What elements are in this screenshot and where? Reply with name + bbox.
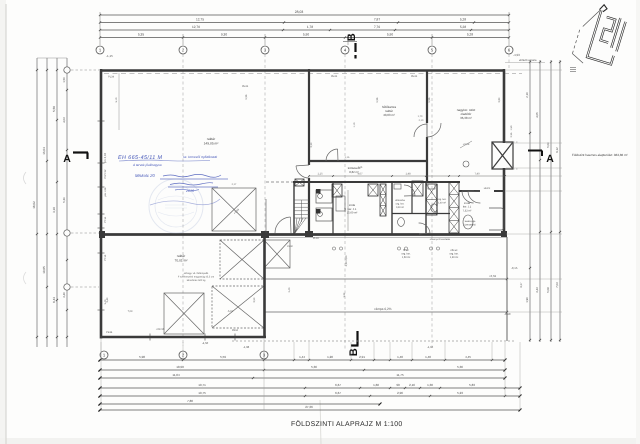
svg-text:2,17: 2,17 <box>344 207 347 212</box>
svg-text:2,50 2,60: 2,50 2,60 <box>345 255 348 266</box>
svg-text:4,05: 4,05 <box>535 112 539 118</box>
svg-text:5,28: 5,28 <box>467 33 473 37</box>
svg-text:3,10: 3,10 <box>52 207 56 213</box>
svg-text:1,70: 1,70 <box>418 115 423 118</box>
svg-text:pm 3,03: pm 3,03 <box>103 153 107 164</box>
svg-text:teherbírás 500 kg: teherbírás 500 kg <box>187 279 206 282</box>
svg-text:7,32 m²: 7,32 m² <box>463 209 472 212</box>
svg-text:PT 30: PT 30 <box>104 254 107 261</box>
svg-text:3,50: 3,50 <box>253 297 256 302</box>
svg-text:5,59: 5,59 <box>220 355 226 359</box>
svg-text:HUPF: HUPF <box>484 187 491 190</box>
svg-text:4,45: 4,45 <box>465 355 471 359</box>
svg-text:2,35: 2,35 <box>510 132 513 137</box>
svg-text:A: A <box>63 153 71 165</box>
svg-text:-4,93: -4,93 <box>513 53 520 57</box>
svg-text:3,80: 3,80 <box>498 97 501 102</box>
svg-text:B: B <box>348 348 360 356</box>
svg-text:40,03 m²: 40,03 m² <box>383 113 395 117</box>
svg-text:11,75: 11,75 <box>396 373 404 377</box>
svg-text:8,43: 8,43 <box>52 297 56 303</box>
svg-text:3,43: 3,43 <box>535 287 539 293</box>
svg-text:4,03: 4,03 <box>62 117 66 123</box>
svg-text:1,15: 1,15 <box>317 172 323 175</box>
svg-text:6,67: 6,67 <box>335 383 341 387</box>
svg-text:12,70: 12,70 <box>192 25 200 29</box>
svg-text:A: A <box>546 153 554 165</box>
svg-text:ker. J.1: ker. J.1 <box>463 206 472 209</box>
svg-text:70,01 m²: 70,01 m² <box>174 258 188 262</box>
svg-text:-0,15: -0,15 <box>511 266 518 270</box>
svg-text:PE34: PE34 <box>106 331 113 334</box>
svg-text:5,10: 5,10 <box>115 97 118 102</box>
svg-text:-1,96: -1,96 <box>427 345 434 349</box>
svg-text:pm 1,96: pm 1,96 <box>104 187 107 196</box>
svg-text:3,40: 3,40 <box>62 292 66 298</box>
svg-text:12,75: 12,75 <box>196 18 204 22</box>
svg-text:org. ker.: org. ker. <box>401 253 410 256</box>
svg-text:9,30: 9,30 <box>221 33 227 37</box>
svg-text:1,30: 1,30 <box>427 383 433 387</box>
svg-text:7,80: 7,80 <box>187 399 193 403</box>
svg-text:3,10: 3,10 <box>310 142 313 147</box>
svg-text:5,96: 5,96 <box>428 97 431 102</box>
svg-text:3,02: 3,02 <box>343 292 346 297</box>
svg-text:sz. tervezői nyilatkozat: sz. tervezői nyilatkozat <box>183 155 218 159</box>
svg-text:+0,59: +0,59 <box>489 274 497 278</box>
svg-text:18,02: 18,02 <box>32 201 36 209</box>
svg-text:5,58: 5,58 <box>52 106 56 112</box>
svg-text:PL40: PL40 <box>287 245 293 248</box>
svg-text:7,03: 7,03 <box>555 282 559 288</box>
svg-text:Miskolc 20: Miskolc 20 <box>135 173 155 178</box>
svg-text:-5,02: -5,02 <box>227 310 233 313</box>
svg-text:1,40 m²: 1,40 m² <box>438 202 446 205</box>
svg-text:5,83: 5,83 <box>469 383 475 387</box>
svg-text:org. ker.: org. ker. <box>449 253 458 256</box>
svg-text:2,16: 2,16 <box>409 383 415 387</box>
svg-text:28,03: 28,03 <box>295 10 304 14</box>
svg-text:8,27: 8,27 <box>520 282 523 288</box>
svg-text:teakonyha: teakonyha <box>465 220 476 223</box>
svg-text:6,67: 6,67 <box>335 391 341 395</box>
svg-text:PE34: PE34 <box>232 329 239 332</box>
svg-text:5,96: 5,96 <box>376 97 379 102</box>
svg-text:11,04: 11,04 <box>172 373 180 377</box>
svg-text:19,71: 19,71 <box>198 383 206 387</box>
svg-text:1,50 m²: 1,50 m² <box>402 256 411 259</box>
svg-text:női wc: női wc <box>450 249 458 252</box>
svg-text:FÖLDSZINTI ALAPRAJZ M 1:100: FÖLDSZINTI ALAPRAJZ M 1:100 <box>291 420 403 428</box>
svg-text:-1,98: -1,98 <box>243 345 250 349</box>
svg-text:1,40: 1,40 <box>397 355 403 359</box>
svg-text:rámpa 6,2%: rámpa 6,2% <box>374 307 391 311</box>
svg-text:7,87: 7,87 <box>374 18 380 22</box>
svg-text:5,36: 5,36 <box>62 197 66 203</box>
svg-text:1,50: 1,50 <box>510 125 513 130</box>
svg-text:1,15: 1,15 <box>358 166 363 169</box>
svg-text:raktár: raktár <box>207 137 216 141</box>
svg-text:5,90: 5,90 <box>303 33 309 37</box>
svg-text:16,04: 16,04 <box>42 147 46 155</box>
svg-text:149,85 m²: 149,85 m² <box>204 141 220 145</box>
svg-text:+05/-55: +05/-55 <box>156 328 165 331</box>
svg-text:5,36: 5,36 <box>311 365 317 369</box>
svg-text:5,36: 5,36 <box>457 365 463 369</box>
svg-text:1,30 m²: 1,30 m² <box>450 256 459 259</box>
svg-text:1,90: 1,90 <box>525 297 529 303</box>
svg-text:7,40: 7,40 <box>474 172 480 175</box>
svg-text:5,08: 5,08 <box>546 287 550 293</box>
svg-text:2,10: 2,10 <box>525 92 529 98</box>
svg-text:2,40: 2,40 <box>288 287 291 292</box>
svg-text:PL34: PL34 <box>108 76 115 79</box>
svg-text:1,60: 1,60 <box>373 383 379 387</box>
svg-text:iroda: iroda <box>464 202 470 205</box>
svg-text:-4,50: -4,50 <box>202 341 209 345</box>
svg-text:5,90: 5,90 <box>387 33 393 37</box>
svg-text:5,98: 5,98 <box>139 355 145 359</box>
svg-text:ker. J.1: ker. J.1 <box>348 208 357 211</box>
svg-text:5,28: 5,28 <box>460 18 466 22</box>
svg-text:10,90: 10,90 <box>176 365 184 369</box>
svg-text:Földszint hasznos alapterület:: Földszint hasznos alapterület: 383,86 m² <box>572 153 628 157</box>
svg-text:5,35: 5,35 <box>138 33 144 37</box>
svg-text:9,12: 9,12 <box>555 147 559 153</box>
svg-text:raktár: raktár <box>177 254 186 258</box>
svg-text:PGY 52: PGY 52 <box>104 169 107 179</box>
svg-text:PE36: PE36 <box>411 75 418 78</box>
svg-text:PE36: PE36 <box>242 85 249 88</box>
svg-text:2,10: 2,10 <box>419 119 424 122</box>
svg-text:5,28: 5,28 <box>460 25 466 29</box>
svg-text:90: 90 <box>396 383 400 387</box>
svg-text:ffi wc: ffi wc <box>403 249 409 252</box>
svg-text:1,15: 1,15 <box>345 156 350 159</box>
svg-text:1,78: 1,78 <box>307 25 313 29</box>
svg-text:5,06: 5,06 <box>546 142 550 148</box>
svg-text:27,36: 27,36 <box>305 405 313 409</box>
svg-text:A tervek jóváhagyva: A tervek jóváhagyva <box>132 163 162 167</box>
svg-text:előtető vonala: előtető vonala <box>519 58 537 62</box>
svg-text:iroda: iroda <box>349 204 355 207</box>
svg-text:1,20: 1,20 <box>327 355 333 359</box>
svg-text:7,76: 7,76 <box>374 25 380 29</box>
svg-text:1,44: 1,44 <box>299 355 305 359</box>
svg-text:1,40: 1,40 <box>425 355 431 359</box>
svg-text:36,38 m²: 36,38 m² <box>460 116 472 120</box>
svg-text:5,23: 5,23 <box>457 391 463 395</box>
svg-text:1,48: 1,48 <box>405 172 411 175</box>
svg-text:-1,15: -1,15 <box>106 54 113 58</box>
svg-text:10,85: 10,85 <box>42 266 46 274</box>
svg-text:szennyvíz kivezetés: szennyvíz kivezetés <box>430 238 451 241</box>
svg-text:5,96: 5,96 <box>245 94 248 99</box>
svg-text:B: B <box>346 33 358 41</box>
svg-text:19,75: 19,75 <box>198 391 206 395</box>
svg-text:1,10: 1,10 <box>353 122 356 127</box>
svg-text:7,03: 7,03 <box>128 310 133 313</box>
svg-text:3,40: 3,40 <box>106 297 109 302</box>
svg-text:1,50: 1,50 <box>62 77 66 83</box>
svg-text:15,60 m²: 15,60 m² <box>347 212 358 215</box>
svg-text:PE36: PE36 <box>331 75 338 78</box>
svg-text:üzemeltető: üzemeltető <box>464 223 476 226</box>
svg-text:0,29 m²: 0,29 m² <box>396 206 404 209</box>
svg-text:2,17: 2,17 <box>232 183 237 186</box>
svg-text:2,96: 2,96 <box>397 391 403 395</box>
svg-text:PT 34: PT 34 <box>104 216 107 223</box>
svg-text:8,82 m²: 8,82 m² <box>349 170 359 174</box>
svg-text:PL40: PL40 <box>313 237 319 240</box>
